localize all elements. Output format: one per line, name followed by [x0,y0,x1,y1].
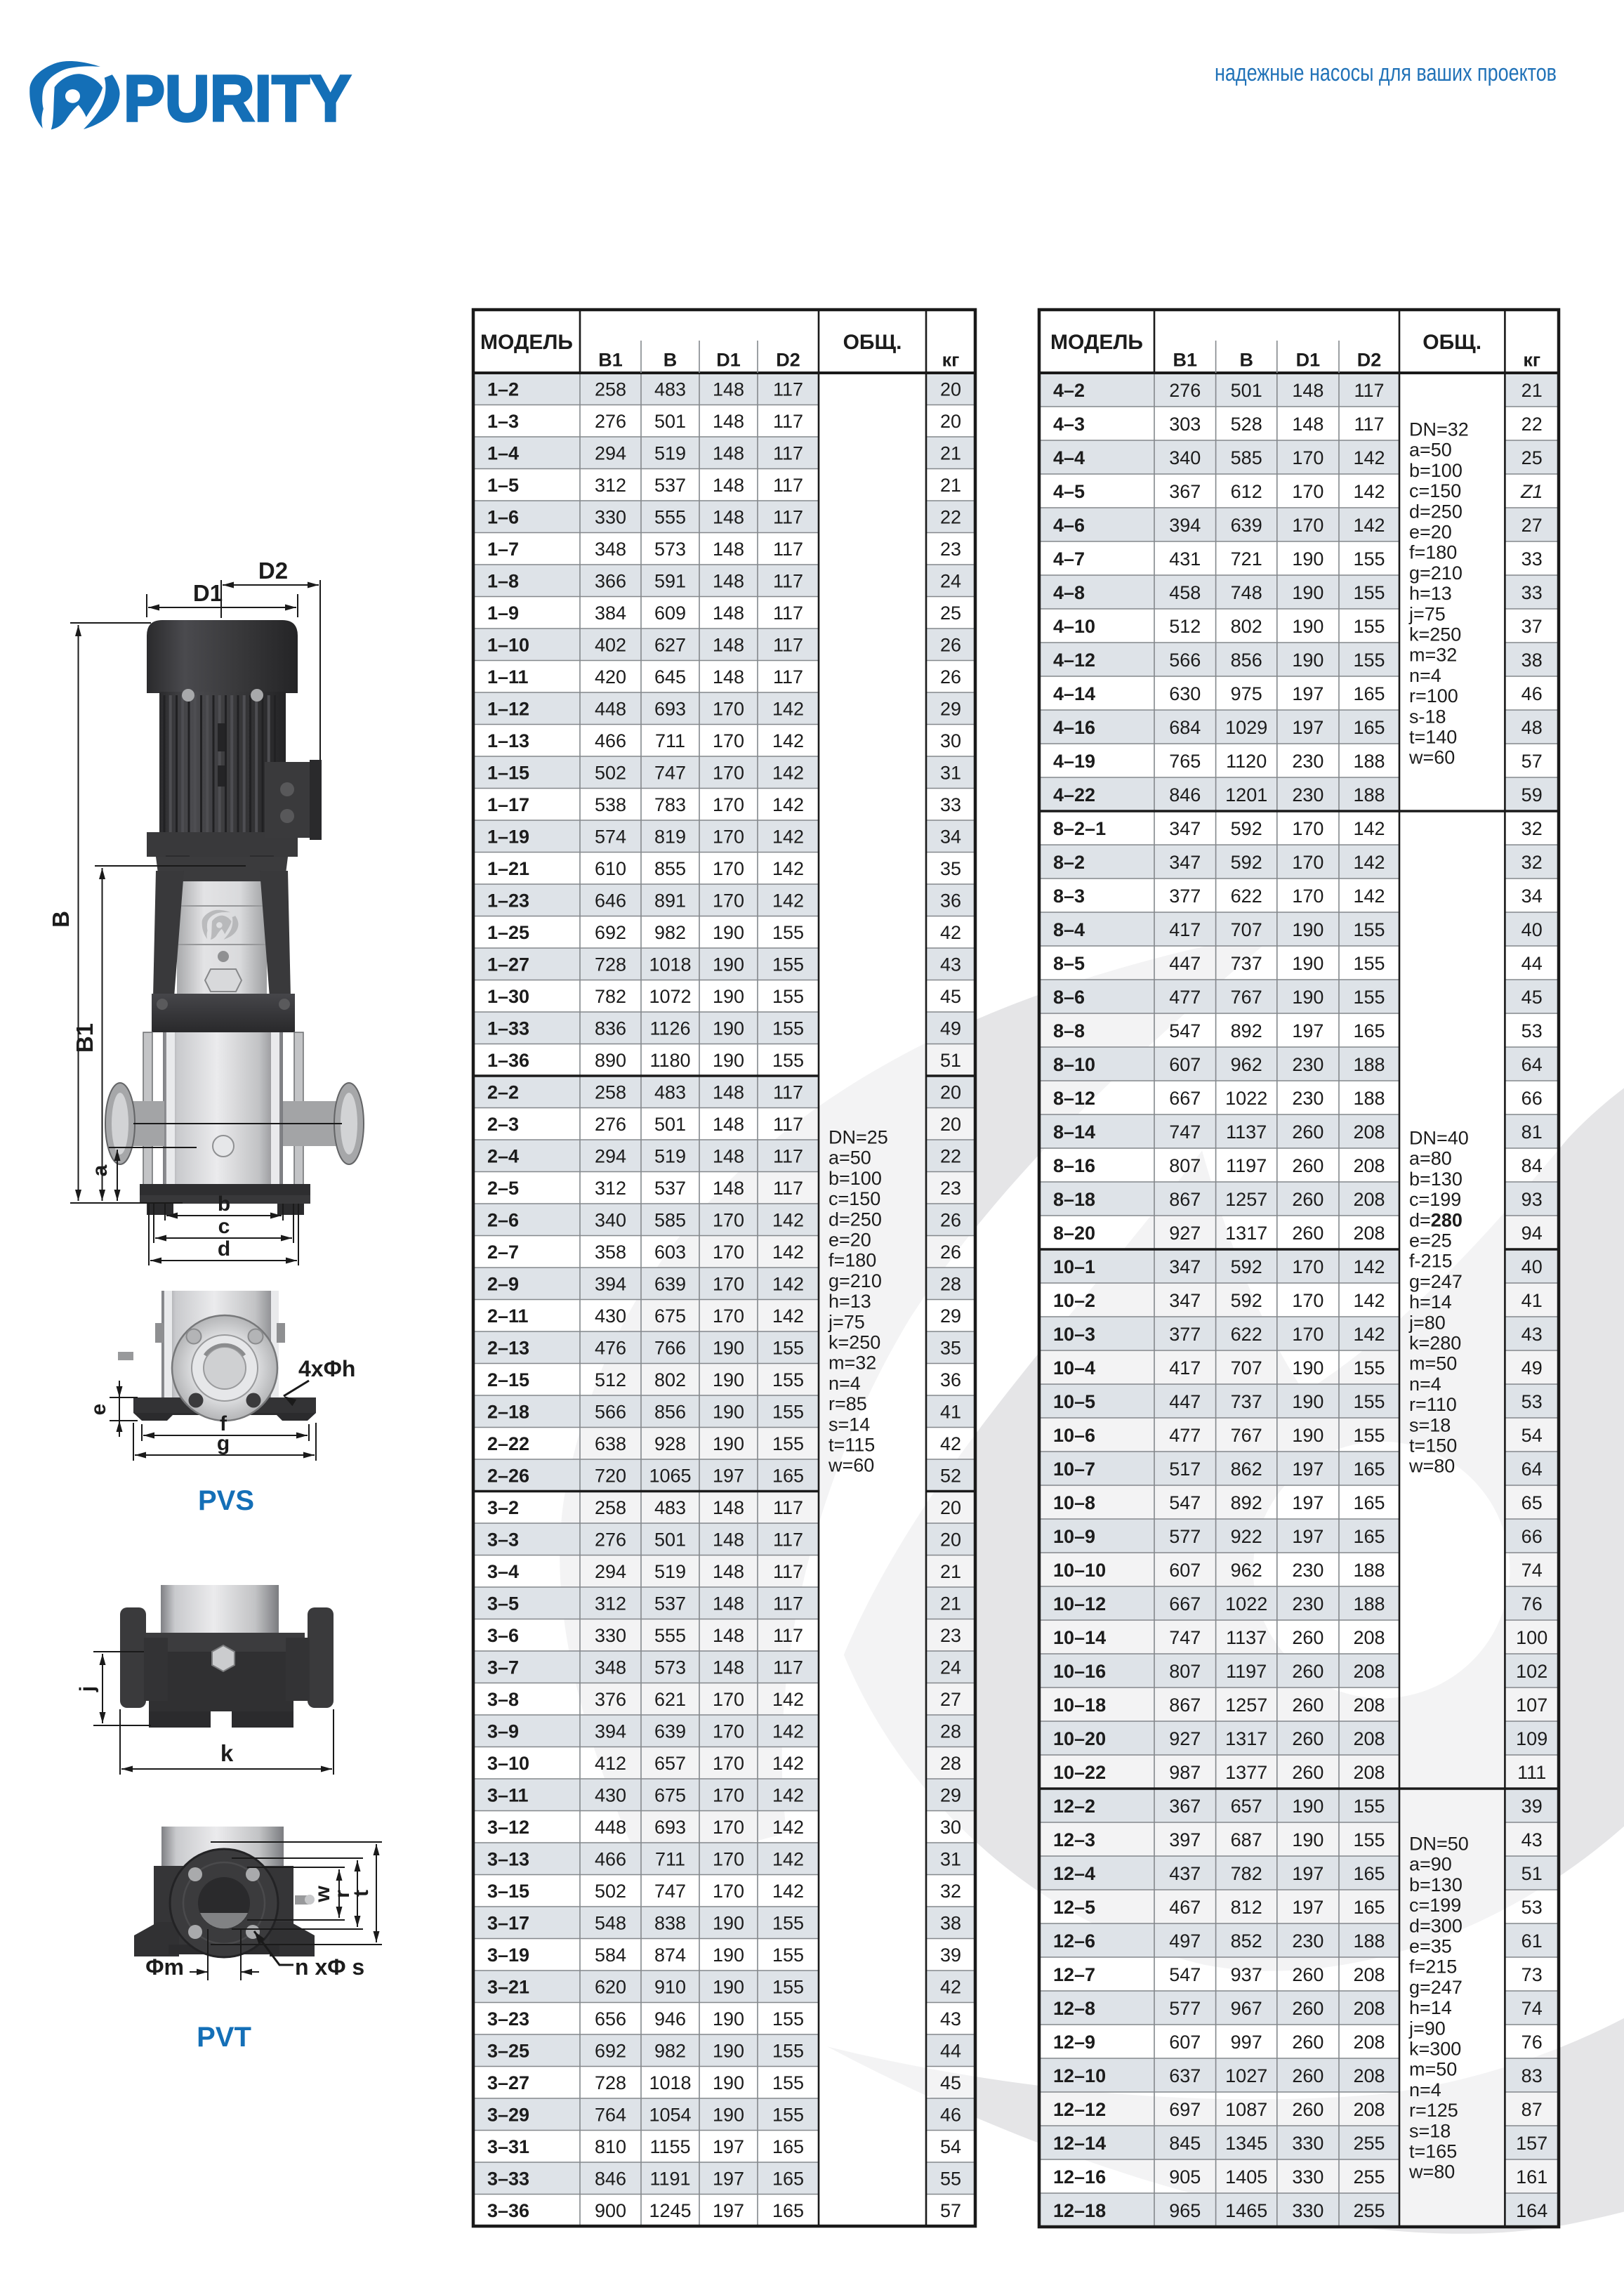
svg-text:4–19: 4–19 [1053,751,1095,772]
svg-text:1–19: 1–19 [487,827,529,848]
svg-text:4–8: 4–8 [1053,582,1085,603]
svg-text:276: 276 [595,1114,626,1135]
svg-text:874: 874 [654,1945,686,1966]
svg-text:900: 900 [595,2200,626,2221]
svg-text:852: 852 [1231,1930,1262,1952]
svg-text:170: 170 [713,1210,744,1231]
svg-text:573: 573 [654,539,686,560]
svg-text:230: 230 [1292,1088,1323,1109]
svg-text:190: 190 [713,986,744,1007]
svg-text:208: 208 [1353,2099,1385,2120]
svg-text:142: 142 [772,699,804,720]
svg-text:45: 45 [940,2072,961,2093]
svg-text:638: 638 [595,1433,626,1454]
svg-text:807: 807 [1169,1661,1201,1682]
svg-text:348: 348 [595,539,626,560]
svg-text:w=80: w=80 [1408,1456,1455,1477]
svg-text:57: 57 [1521,751,1543,772]
svg-text:170: 170 [713,763,744,784]
svg-text:54: 54 [940,2136,961,2157]
svg-text:412: 412 [595,1753,626,1774]
svg-text:555: 555 [654,1625,686,1646]
svg-text:t=165: t=165 [1409,2141,1457,2162]
svg-text:170: 170 [1292,1256,1323,1277]
svg-text:38: 38 [1521,650,1543,671]
svg-text:155: 155 [1353,548,1385,570]
svg-text:622: 622 [1231,886,1262,907]
svg-text:585: 585 [1231,447,1262,468]
svg-text:b=100: b=100 [828,1168,882,1189]
svg-text:165: 165 [772,2169,804,2190]
svg-text:Z1: Z1 [1520,481,1543,502]
svg-text:537: 537 [654,475,686,496]
svg-text:8–5: 8–5 [1053,953,1085,974]
svg-text:26: 26 [940,1210,961,1231]
svg-text:208: 208 [1353,1762,1385,1783]
svg-text:g=210: g=210 [1409,563,1463,584]
svg-text:2–6: 2–6 [487,1210,519,1231]
svg-text:260: 260 [1292,1762,1323,1783]
svg-text:48: 48 [1521,717,1543,738]
svg-text:142: 142 [1353,481,1385,502]
svg-text:12–10: 12–10 [1053,2065,1106,2086]
svg-text:165: 165 [1353,1863,1385,1884]
svg-text:1018: 1018 [649,954,691,975]
svg-text:592: 592 [1231,1290,1262,1311]
svg-text:26: 26 [940,635,961,656]
svg-text:35: 35 [940,1338,961,1359]
svg-text:1–4: 1–4 [487,443,519,464]
svg-text:1–15: 1–15 [487,763,529,784]
svg-text:3–17: 3–17 [487,1913,529,1934]
svg-text:417: 417 [1169,1357,1201,1379]
svg-text:1018: 1018 [649,2072,691,2093]
svg-text:477: 477 [1169,1425,1201,1446]
svg-text:41: 41 [940,1402,961,1423]
svg-text:188: 188 [1353,784,1385,805]
svg-text:45: 45 [1521,987,1543,1008]
svg-text:592: 592 [1231,852,1262,873]
svg-text:190: 190 [1292,919,1323,940]
svg-text:B1: B1 [72,1023,98,1053]
svg-text:155: 155 [1353,650,1385,671]
svg-text:43: 43 [940,954,961,975]
svg-text:157: 157 [1516,2133,1547,2154]
svg-text:170: 170 [713,1785,744,1806]
svg-text:38: 38 [940,1913,961,1934]
svg-text:12–16: 12–16 [1053,2166,1106,2188]
svg-text:610: 610 [595,858,626,879]
svg-text:r=85: r=85 [828,1393,867,1414]
svg-text:n=4: n=4 [1409,2079,1441,2100]
svg-text:B1: B1 [598,349,623,370]
svg-text:466: 466 [595,730,626,751]
svg-text:294: 294 [595,443,626,464]
svg-text:910: 910 [654,1977,686,1998]
svg-text:170: 170 [1292,515,1323,536]
svg-text:PURITY: PURITY [124,62,351,135]
svg-text:53: 53 [1521,1897,1543,1918]
svg-text:g=247: g=247 [1409,1271,1463,1292]
svg-text:2–26: 2–26 [487,1466,529,1487]
svg-text:483: 483 [654,1082,686,1103]
svg-text:4–22: 4–22 [1053,784,1095,805]
svg-text:258: 258 [595,1082,626,1103]
svg-text:303: 303 [1169,414,1201,435]
svg-text:c: c [218,1215,230,1238]
svg-text:3–31: 3–31 [487,2136,529,2157]
svg-text:142: 142 [772,1242,804,1263]
svg-text:190: 190 [713,1977,744,1998]
svg-text:c=199: c=199 [1409,1189,1461,1210]
svg-text:t: t [350,1890,373,1897]
svg-text:208: 208 [1353,1998,1385,2019]
svg-text:497: 497 [1169,1930,1201,1952]
svg-text:142: 142 [772,763,804,784]
svg-text:DN=32: DN=32 [1409,419,1469,440]
svg-text:547: 547 [1169,1020,1201,1041]
svg-text:k=280: k=280 [1409,1333,1461,1354]
svg-text:2–15: 2–15 [487,1369,529,1390]
svg-text:802: 802 [654,1369,686,1390]
svg-text:n=4: n=4 [828,1373,861,1394]
svg-text:w=80: w=80 [1408,2162,1455,2183]
svg-text:1065: 1065 [649,1466,691,1487]
svg-text:862: 862 [1231,1459,1262,1480]
svg-text:83: 83 [1521,2065,1543,2086]
svg-text:312: 312 [595,1178,626,1199]
svg-text:190: 190 [713,1433,744,1454]
svg-text:1–12: 1–12 [487,699,529,720]
svg-text:10–1: 10–1 [1053,1256,1095,1277]
svg-text:142: 142 [772,1210,804,1231]
svg-text:197: 197 [1292,683,1323,704]
svg-text:j=75: j=75 [1408,603,1446,624]
svg-text:483: 483 [654,379,686,400]
svg-text:8–6: 8–6 [1053,987,1085,1008]
svg-text:1022: 1022 [1225,1593,1267,1614]
svg-text:367: 367 [1169,481,1201,502]
svg-text:255: 255 [1353,2166,1385,2188]
svg-text:197: 197 [1292,1020,1323,1041]
svg-text:190: 190 [713,1369,744,1390]
svg-text:20: 20 [940,411,961,432]
svg-text:1–9: 1–9 [487,603,519,624]
svg-text:r=125: r=125 [1409,2100,1458,2121]
svg-text:3–12: 3–12 [487,1817,529,1838]
svg-text:622: 622 [1231,1324,1262,1345]
svg-text:PVT: PVT [197,2022,251,2053]
svg-text:12–14: 12–14 [1053,2133,1106,2154]
svg-text:466: 466 [595,1849,626,1870]
svg-text:646: 646 [595,890,626,912]
svg-text:230: 230 [1292,1593,1323,1614]
svg-text:s=18: s=18 [1409,1414,1451,1435]
svg-text:m=32: m=32 [1409,645,1457,666]
svg-text:476: 476 [595,1338,626,1359]
svg-text:190: 190 [713,922,744,943]
svg-text:21: 21 [940,1561,961,1582]
svg-text:142: 142 [772,1881,804,1902]
svg-text:1137: 1137 [1226,1121,1267,1143]
svg-text:142: 142 [772,827,804,848]
svg-text:348: 348 [595,1657,626,1678]
svg-text:148: 148 [713,1114,744,1135]
svg-text:519: 519 [654,1561,686,1582]
svg-text:260: 260 [1292,1661,1323,1682]
svg-text:170: 170 [1292,447,1323,468]
svg-text:10–14: 10–14 [1053,1627,1106,1648]
svg-text:276: 276 [1169,380,1201,401]
svg-text:1201: 1201 [1225,784,1267,805]
svg-text:142: 142 [772,1785,804,1806]
svg-text:t=115: t=115 [828,1435,875,1456]
svg-text:165: 165 [772,2136,804,2157]
svg-text:73: 73 [1521,1964,1543,1985]
svg-text:2–18: 2–18 [487,1402,529,1423]
svg-text:44: 44 [1521,953,1543,974]
svg-text:1–36: 1–36 [487,1050,529,1071]
svg-text:170: 170 [713,1817,744,1838]
svg-text:230: 230 [1292,1560,1323,1581]
svg-text:1–5: 1–5 [487,475,519,496]
svg-text:148: 148 [713,1178,744,1199]
svg-text:МОДЕЛЬ: МОДЕЛЬ [480,331,573,354]
svg-text:3–29: 3–29 [487,2105,529,2126]
svg-text:165: 165 [1353,1526,1385,1547]
svg-text:164: 164 [1516,2200,1547,2221]
svg-text:330: 330 [1292,2133,1323,2154]
svg-text:t=150: t=150 [1409,1435,1457,1456]
svg-text:h=14: h=14 [1409,1291,1452,1313]
svg-text:1155: 1155 [649,2136,690,2157]
svg-text:32: 32 [1521,852,1543,873]
svg-text:40: 40 [1521,1256,1543,1277]
svg-text:20: 20 [940,1530,961,1551]
svg-text:366: 366 [595,571,626,592]
svg-text:592: 592 [1231,1256,1262,1277]
svg-text:645: 645 [654,666,686,688]
svg-text:117: 117 [773,443,803,464]
svg-text:117: 117 [773,1625,803,1646]
svg-text:905: 905 [1169,2166,1201,2188]
svg-text:4xΦh: 4xΦh [298,1356,355,1381]
svg-text:PVS: PVS [198,1485,254,1516]
svg-text:190: 190 [1292,987,1323,1008]
svg-text:59: 59 [1521,784,1543,805]
svg-text:260: 260 [1292,2099,1323,2120]
svg-text:377: 377 [1169,886,1201,907]
svg-text:3–7: 3–7 [487,1657,519,1678]
svg-text:747: 747 [654,1881,686,1902]
svg-text:j=90: j=90 [1408,2018,1446,2039]
svg-text:n xΦ s: n xΦ s [295,1954,364,1980]
svg-text:3–25: 3–25 [487,2041,529,2062]
svg-text:155: 155 [1353,616,1385,637]
svg-text:3–27: 3–27 [487,2072,529,2093]
svg-text:B1: B1 [1173,349,1198,370]
svg-text:577: 577 [1169,1526,1201,1547]
svg-text:142: 142 [1353,1256,1385,1277]
svg-text:190: 190 [713,1050,744,1071]
svg-text:467: 467 [1169,1897,1201,1918]
svg-text:1–33: 1–33 [487,1018,529,1039]
svg-text:142: 142 [1353,852,1385,873]
svg-text:D2: D2 [1357,349,1382,370]
svg-text:845: 845 [1169,2133,1201,2154]
svg-text:812: 812 [1231,1897,1262,1918]
svg-text:a=90: a=90 [1409,1854,1452,1875]
svg-text:МОДЕЛЬ: МОДЕЛЬ [1050,331,1143,354]
svg-text:190: 190 [713,1338,744,1359]
svg-text:585: 585 [654,1210,686,1231]
svg-text:190: 190 [1292,616,1323,637]
svg-text:2–22: 2–22 [487,1433,529,1454]
svg-text:620: 620 [595,1977,626,1998]
svg-text:10–8: 10–8 [1053,1492,1095,1513]
svg-text:кг: кг [1523,349,1540,370]
svg-text:208: 208 [1353,1121,1385,1143]
svg-text:D1: D1 [716,349,741,370]
svg-text:537: 537 [654,1178,686,1199]
svg-text:155: 155 [772,1369,804,1390]
svg-text:55: 55 [940,2169,961,2190]
svg-text:j: j [76,1686,99,1692]
svg-text:965: 965 [1169,2200,1201,2221]
svg-text:846: 846 [1169,784,1201,805]
svg-text:846: 846 [595,2169,626,2190]
svg-text:3–19: 3–19 [487,1945,529,1966]
svg-text:501: 501 [654,1114,686,1135]
svg-text:117: 117 [773,379,803,400]
svg-text:230: 230 [1292,1054,1323,1075]
svg-text:538: 538 [595,794,626,815]
svg-text:697: 697 [1169,2099,1201,2120]
svg-text:33: 33 [940,794,961,815]
svg-text:975: 975 [1231,683,1262,704]
svg-text:12–7: 12–7 [1053,1964,1095,1985]
svg-text:d=250: d=250 [828,1209,882,1230]
svg-text:946: 946 [654,2008,686,2030]
svg-text:45: 45 [940,986,961,1007]
svg-text:33: 33 [1521,582,1543,603]
svg-text:s=14: s=14 [828,1414,870,1435]
svg-text:20: 20 [940,1082,961,1103]
svg-text:197: 197 [1292,717,1323,738]
svg-text:8–4: 8–4 [1053,919,1085,940]
svg-text:142: 142 [772,1753,804,1774]
svg-text:728: 728 [595,2072,626,2093]
svg-text:1191: 1191 [649,2169,690,2190]
svg-text:31: 31 [940,763,961,784]
svg-text:188: 188 [1353,1593,1385,1614]
svg-text:3–5: 3–5 [487,1593,519,1614]
svg-text:170: 170 [713,1721,744,1742]
svg-text:170: 170 [1292,886,1323,907]
svg-text:111: 111 [1517,1762,1546,1783]
svg-text:w=60: w=60 [828,1455,874,1476]
svg-text:148: 148 [1292,414,1323,435]
svg-text:117: 117 [773,1146,803,1167]
svg-text:197: 197 [1292,1526,1323,1547]
svg-text:502: 502 [595,763,626,784]
svg-text:2–13: 2–13 [487,1338,529,1359]
svg-text:36: 36 [940,890,961,912]
svg-text:155: 155 [1353,919,1385,940]
svg-text:148: 148 [713,475,744,496]
svg-text:190: 190 [1292,1829,1323,1850]
svg-text:627: 627 [654,635,686,656]
svg-text:117: 117 [773,635,803,656]
svg-text:34: 34 [1521,886,1543,907]
svg-text:607: 607 [1169,1054,1201,1075]
svg-text:30: 30 [940,730,961,751]
svg-text:51: 51 [1521,1863,1543,1884]
svg-text:1257: 1257 [1225,1695,1267,1716]
svg-text:208: 208 [1353,1964,1385,1985]
svg-text:22: 22 [940,1146,961,1167]
svg-text:s-18: s-18 [1409,706,1446,727]
svg-text:76: 76 [1521,2032,1543,2053]
svg-text:10–22: 10–22 [1053,1762,1106,1783]
svg-text:148: 148 [713,1625,744,1646]
svg-text:8–16: 8–16 [1053,1155,1095,1176]
svg-text:512: 512 [1169,616,1201,637]
svg-text:208: 208 [1353,1627,1385,1648]
svg-text:65: 65 [1521,1492,1543,1513]
svg-text:260: 260 [1292,1189,1323,1210]
svg-text:h=13: h=13 [1409,583,1452,604]
svg-text:517: 517 [1169,1459,1201,1480]
svg-text:161: 161 [1516,2166,1547,2188]
svg-text:3–11: 3–11 [487,1785,529,1806]
svg-text:d: d [218,1237,230,1261]
svg-text:148: 148 [713,443,744,464]
svg-text:170: 170 [1292,1324,1323,1345]
svg-text:190: 190 [713,2072,744,2093]
svg-text:165: 165 [1353,1897,1385,1918]
svg-text:25: 25 [940,603,961,624]
svg-text:1317: 1317 [1225,1223,1267,1244]
svg-text:10–3: 10–3 [1053,1324,1095,1345]
svg-text:402: 402 [595,635,626,656]
svg-text:170: 170 [713,1881,744,1902]
svg-text:855: 855 [654,858,686,879]
svg-text:3–4: 3–4 [487,1561,519,1582]
svg-text:707: 707 [1231,1357,1262,1379]
svg-text:B: B [48,911,74,928]
svg-text:39: 39 [940,1945,961,1966]
svg-text:430: 430 [595,1305,626,1327]
svg-text:117: 117 [773,1657,803,1678]
svg-text:h=14: h=14 [1409,1997,1452,2018]
svg-text:170: 170 [713,858,744,879]
svg-text:32: 32 [1521,818,1543,839]
svg-text:188: 188 [1353,1930,1385,1952]
svg-text:197: 197 [713,2136,744,2157]
svg-text:64: 64 [1521,1459,1543,1480]
svg-text:102: 102 [1516,1661,1547,1682]
svg-text:n=4: n=4 [1409,665,1441,686]
svg-text:330: 330 [595,1625,626,1646]
svg-text:1–3: 1–3 [487,411,519,432]
svg-text:36: 36 [940,1369,961,1390]
svg-text:836: 836 [595,1018,626,1039]
svg-text:1–17: 1–17 [487,794,529,815]
svg-text:394: 394 [595,1721,626,1742]
svg-text:592: 592 [1231,818,1262,839]
svg-text:29: 29 [940,1785,961,1806]
